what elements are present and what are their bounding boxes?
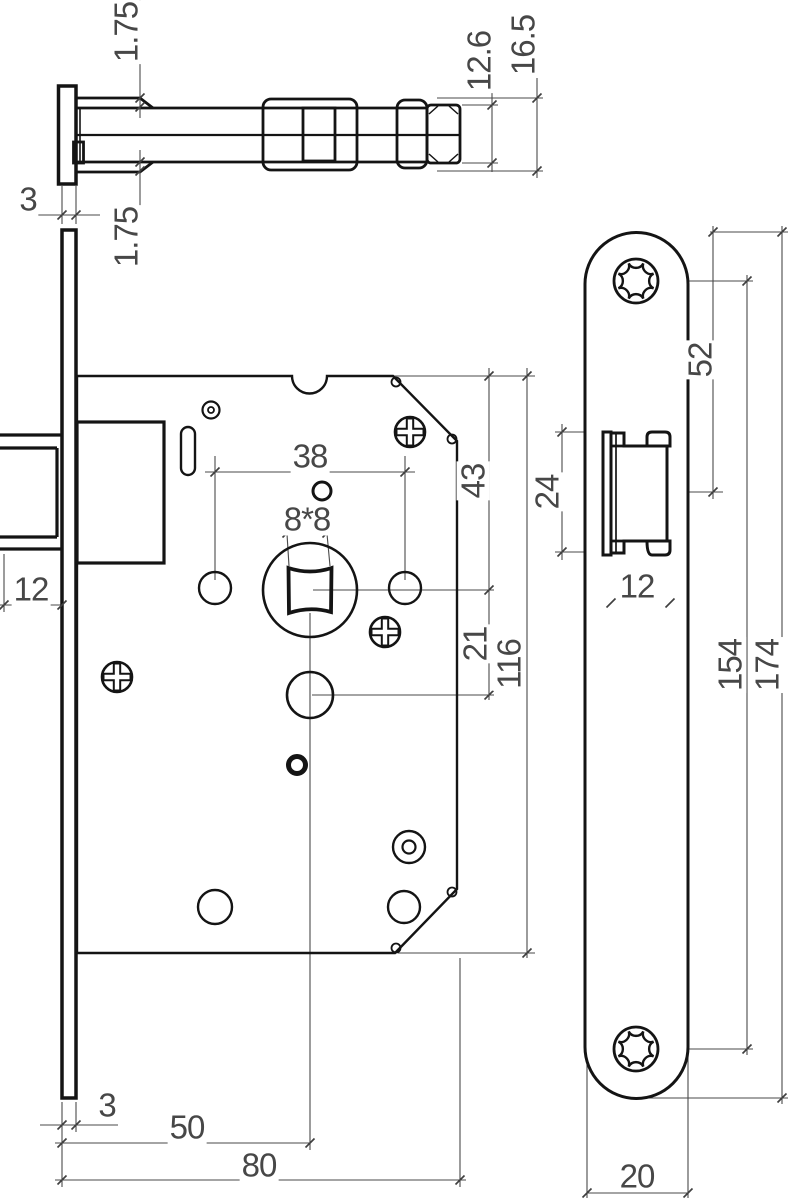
dim-label-spindle-to-follower: 21: [459, 625, 492, 664]
dim-label-backset: 50: [168, 1111, 207, 1144]
slot-hole: [181, 427, 195, 475]
chamfer-pin-holes: [392, 378, 457, 953]
faceplate-section: [59, 86, 77, 184]
dim-label-overall-height: 16.5: [507, 13, 540, 77]
small-hole: [313, 482, 331, 500]
dim-label-latch-protrusion: 12: [12, 573, 51, 606]
dim-label-top-to-spindle: 43: [457, 462, 490, 501]
dim-label-case-depth: 80: [240, 1149, 279, 1182]
lock-case-front-view: [0, 230, 535, 1187]
dim-label-faceplate-thk-top: 3: [17, 183, 38, 216]
bottom-hole-left: [198, 890, 232, 924]
case-outline: [77, 376, 457, 953]
technical-drawing-canvas: 1.75 12.6 16.5 3 1.75 38 8*8 43 21 116 1…: [0, 0, 789, 1200]
drawing-geometry: [0, 0, 789, 1200]
dim-label-latch-height: 24: [531, 473, 564, 512]
dim-label-case-height: 116: [493, 637, 526, 691]
phillips-screw-icon: [370, 617, 400, 647]
latch-bolt-body-front: [77, 422, 164, 563]
rivet-top: [203, 402, 220, 419]
dim-label-faceplate-thk-bot: 3: [96, 1089, 117, 1122]
dim-label-screw-spacing: 154: [714, 637, 747, 693]
phillips-screw-icon: [102, 662, 132, 692]
faceplate-side-view: [555, 226, 788, 1198]
dim-label-latch-width: 12: [618, 570, 657, 603]
latch-bolt-head: [0, 435, 62, 549]
latch-bolt-body: [74, 98, 461, 172]
dim-label-offset-top: 1.75: [110, 0, 143, 64]
dim-label-offset-bottom: 1.75: [110, 205, 143, 269]
dim-label-spindle-square: 8*8: [282, 503, 333, 536]
faceplate-front: [62, 230, 76, 1098]
dim-label-plate-width: 20: [618, 1160, 657, 1193]
dim-label-top-to-latch: 52: [684, 341, 717, 380]
spring-post: [289, 757, 306, 774]
top-view-dim-ticks: [58, 94, 542, 220]
phillips-screw-icon: [395, 417, 425, 447]
rivet-bottom: [393, 831, 425, 863]
dim-label-hole-spacing: 38: [291, 440, 330, 473]
front-view-dim-ticks: [0, 372, 532, 1185]
faceplate-plate: [585, 233, 688, 1099]
dim-label-bolt-height: 12.6: [463, 29, 496, 93]
dim-label-plate-length: 174: [751, 637, 784, 693]
bottom-hole-right: [388, 891, 420, 923]
